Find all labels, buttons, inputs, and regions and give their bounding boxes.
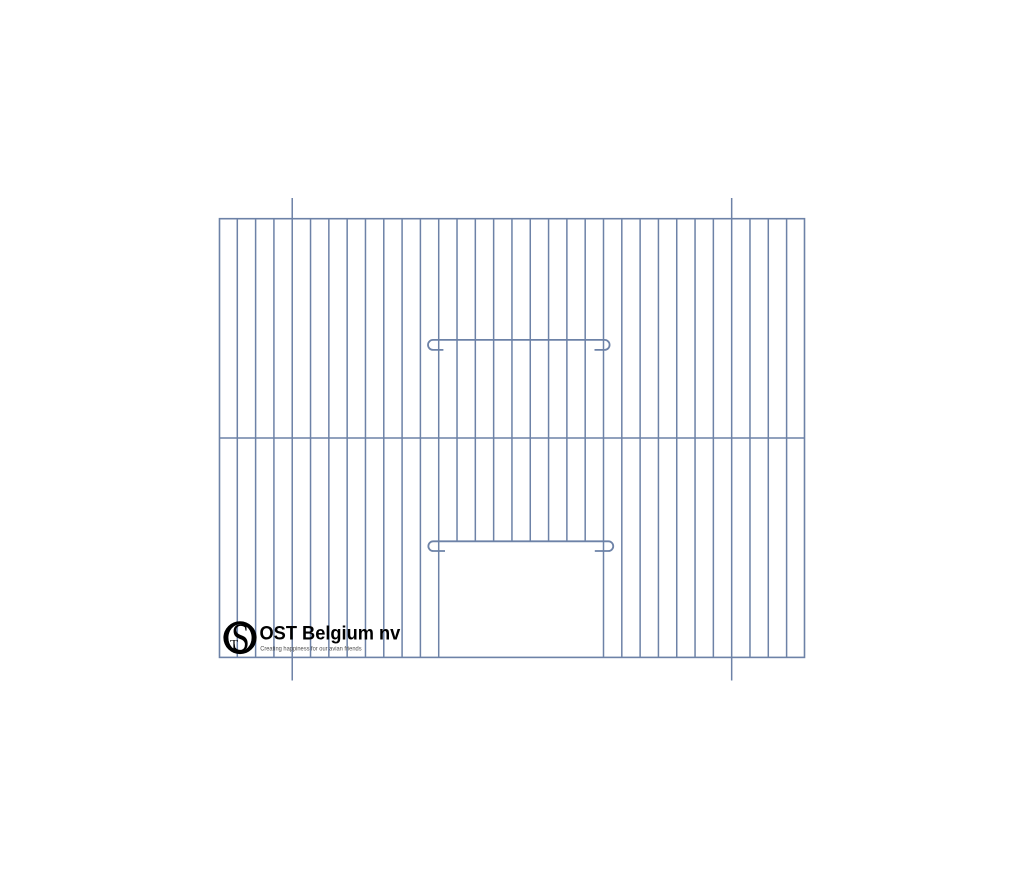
svg-text:Creating happiness for our avi: Creating happiness for our avian friends — [260, 645, 361, 652]
svg-text:OST Belgium nv: OST Belgium nv — [260, 624, 401, 645]
svg-text:T: T — [230, 636, 238, 651]
